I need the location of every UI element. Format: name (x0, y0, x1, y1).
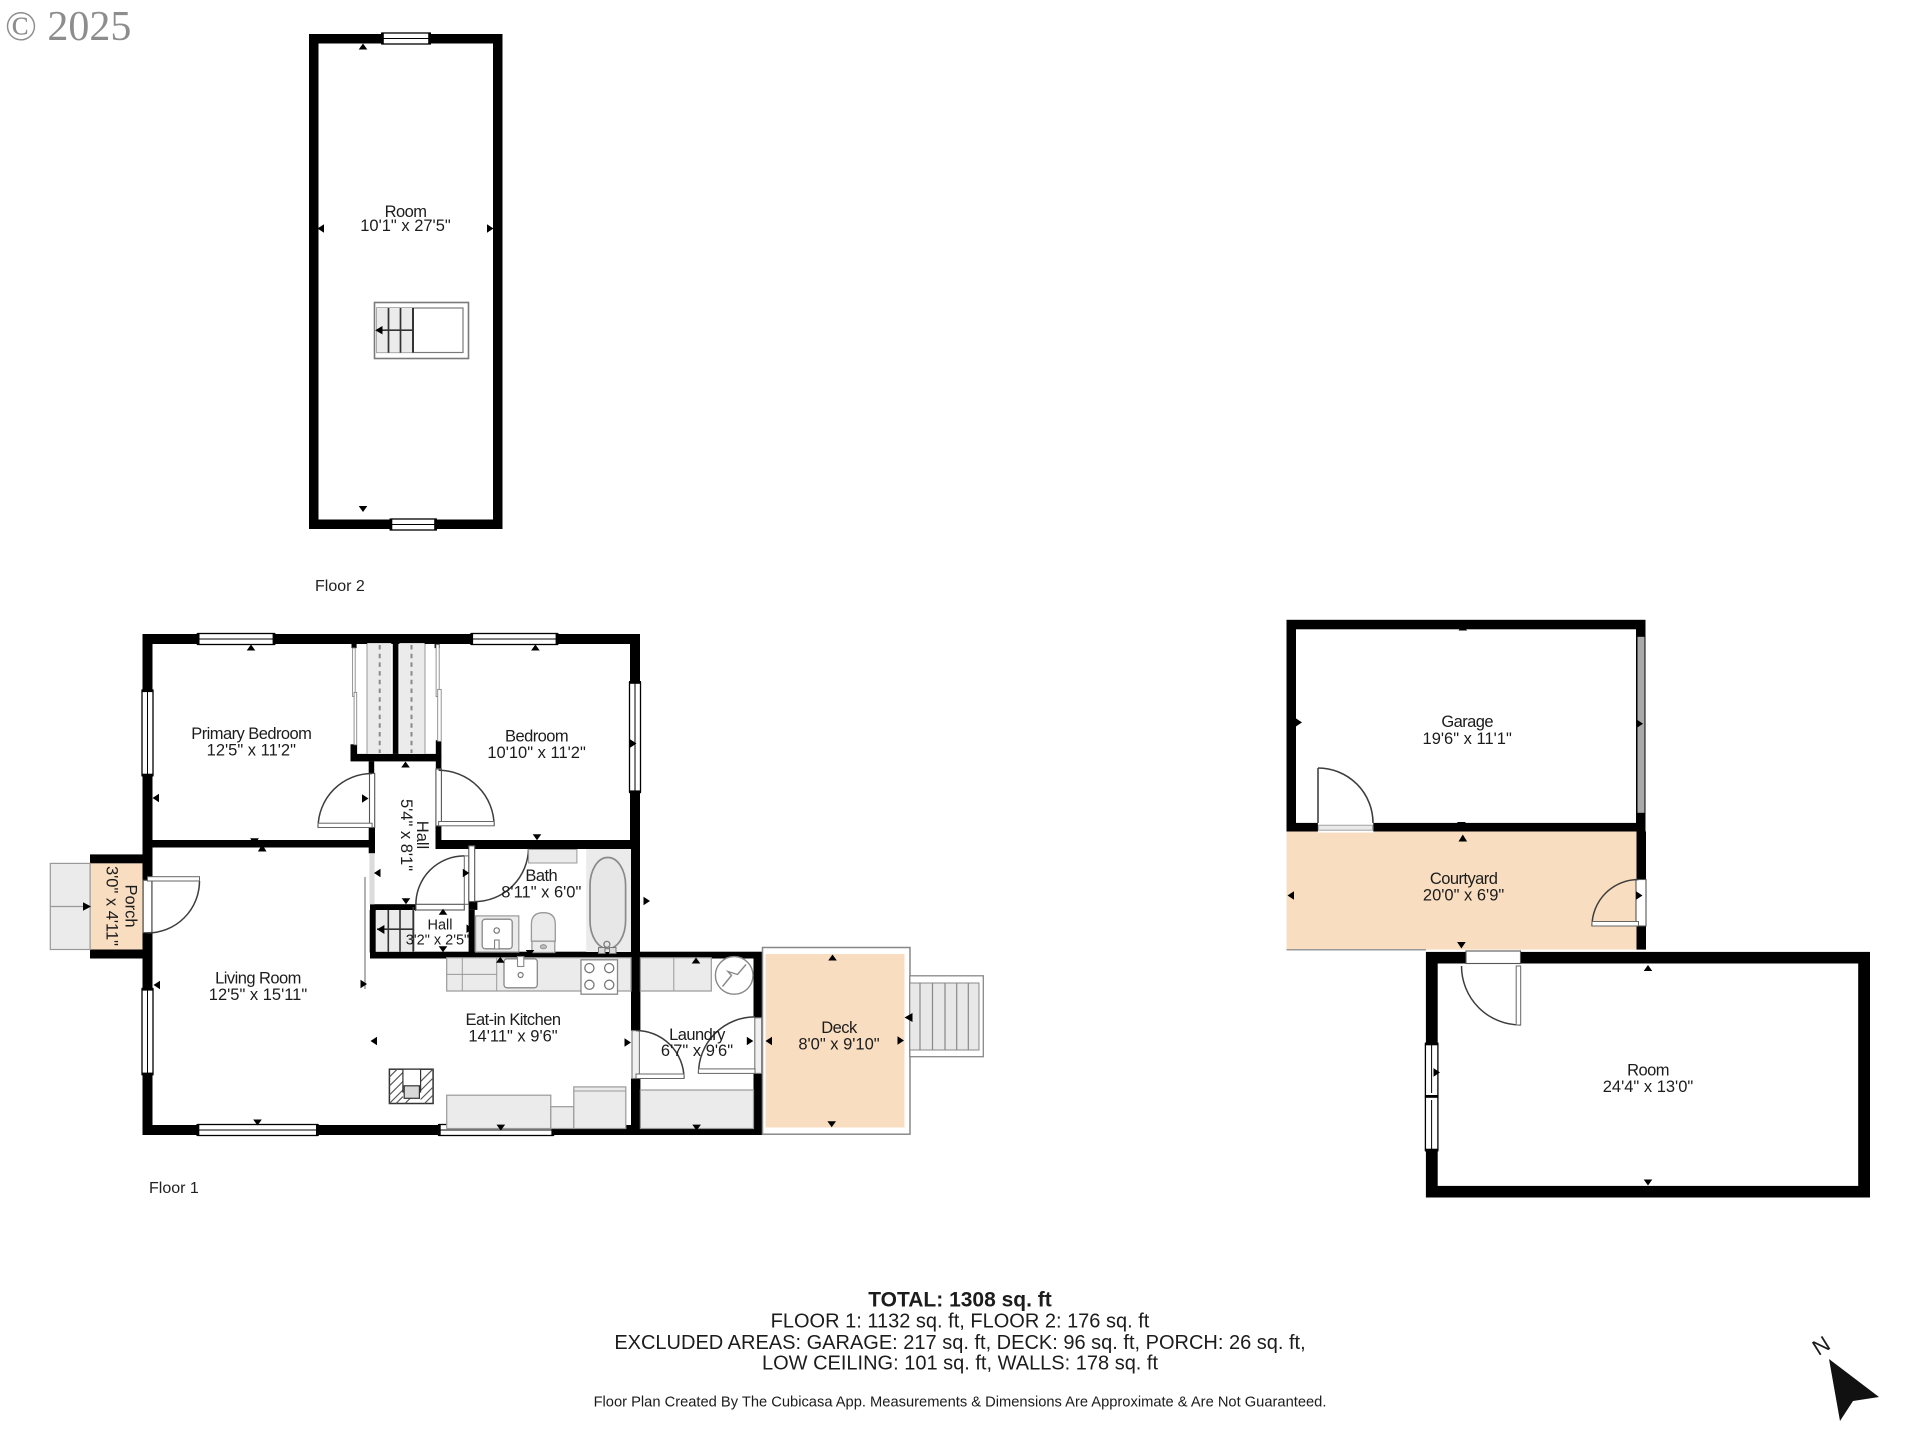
svg-text:19'6" x 11'1": 19'6" x 11'1" (1423, 730, 1512, 748)
svg-text:TOTAL: 1308 sq. ft: TOTAL: 1308 sq. ft (868, 1289, 1052, 1312)
svg-text:FLOOR 1: 1132 sq. ft, FLOOR 2:: FLOOR 1: 1132 sq. ft, FLOOR 2: 176 sq. f… (771, 1310, 1150, 1332)
svg-text:12'5" x 15'11": 12'5" x 15'11" (209, 986, 308, 1004)
svg-text:8'11" x 6'0": 8'11" x 6'0" (501, 884, 581, 902)
svg-text:24'4" x 13'0": 24'4" x 13'0" (1603, 1078, 1694, 1096)
svg-text:Floor 1: Floor 1 (149, 1180, 199, 1197)
svg-text:6'7" x 9'6": 6'7" x 9'6" (661, 1042, 733, 1060)
svg-text:3'2" x 2'5": 3'2" x 2'5" (406, 933, 469, 949)
svg-text:Room: Room (1627, 1062, 1669, 1080)
svg-text:Eat-in Kitchen: Eat-in Kitchen (465, 1011, 560, 1029)
svg-text:20'0" x 6'9": 20'0" x 6'9" (1423, 887, 1504, 905)
svg-text:Courtyard: Courtyard (1430, 870, 1498, 888)
svg-text:Primary Bedroom: Primary Bedroom (191, 725, 311, 743)
svg-text:8'0" x 9'10": 8'0" x 9'10" (798, 1036, 879, 1054)
svg-text:Bedroom: Bedroom (505, 728, 568, 746)
svg-text:Floor 2: Floor 2 (315, 578, 365, 595)
svg-text:10'10" x 11'2": 10'10" x 11'2" (487, 744, 586, 762)
svg-text:Floor Plan Created By The Cubi: Floor Plan Created By The Cubicasa App. … (594, 1395, 1327, 1411)
svg-text:Bath: Bath (525, 867, 557, 885)
svg-text:10'1" x 27'5": 10'1" x 27'5" (360, 217, 451, 235)
svg-text:EXCLUDED AREAS: GARAGE: 217 sq: EXCLUDED AREAS: GARAGE: 217 sq. ft, DECK… (614, 1332, 1305, 1354)
svg-text:Deck: Deck (821, 1019, 858, 1037)
svg-text:14'11" x 9'6": 14'11" x 9'6" (468, 1028, 557, 1046)
svg-text:12'5" x 11'2": 12'5" x 11'2" (207, 742, 296, 760)
svg-text:Garage: Garage (1441, 713, 1493, 731)
svg-text:Hall: Hall (428, 918, 453, 934)
svg-text:© 2025: © 2025 (5, 4, 131, 50)
svg-text:Living Room: Living Room (215, 970, 301, 988)
svg-text:LOW CEILING: 101 sq. ft, WALLS: LOW CEILING: 101 sq. ft, WALLS: 178 sq. … (762, 1352, 1159, 1374)
